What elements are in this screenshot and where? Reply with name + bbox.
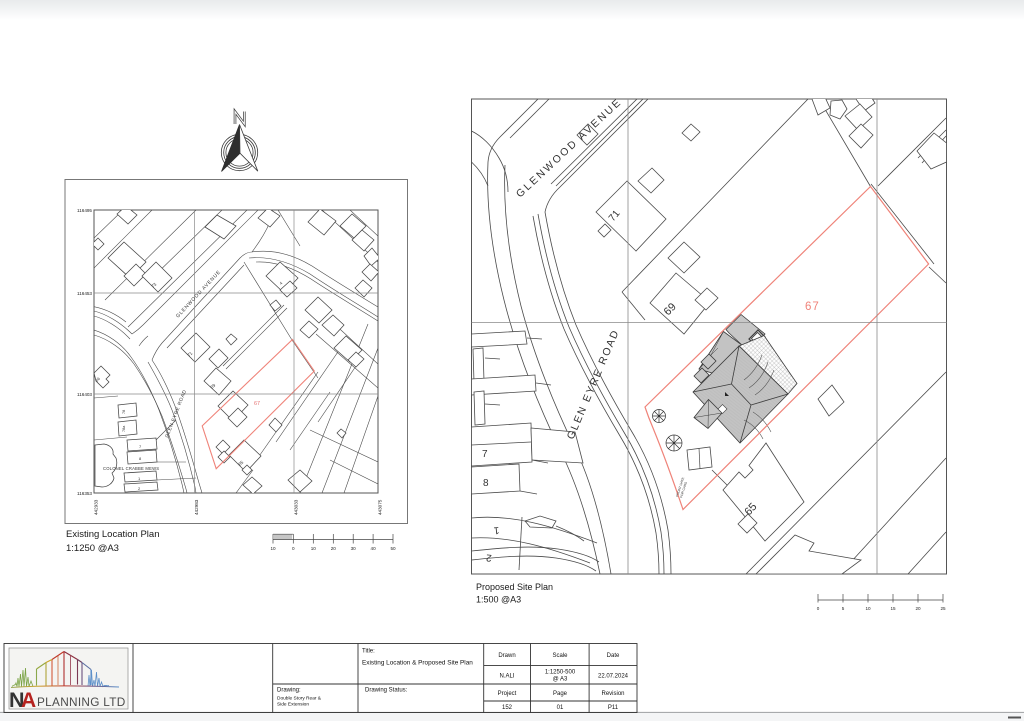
svg-text:5: 5	[842, 606, 845, 611]
svg-text:@ A3: @ A3	[553, 677, 568, 683]
svg-text:10: 10	[270, 546, 276, 551]
svg-text:P11: P11	[608, 705, 619, 711]
svg-text:116495: 116495	[77, 208, 92, 213]
svg-text:30: 30	[351, 546, 357, 551]
svg-text:0: 0	[817, 606, 820, 611]
svg-text:Date: Date	[607, 653, 620, 659]
svg-text:Drawn: Drawn	[498, 653, 515, 659]
svg-text:Project: Project	[498, 691, 517, 697]
svg-text:A: A	[21, 689, 36, 712]
svg-text:Proposed Site Plan: Proposed Site Plan	[476, 582, 553, 592]
svg-text:116353: 116353	[77, 491, 92, 496]
svg-text:0: 0	[292, 546, 295, 551]
svg-text:01: 01	[557, 705, 564, 711]
svg-text:67: 67	[805, 301, 820, 313]
svg-text:20: 20	[915, 606, 921, 611]
svg-text:Drawing Status:: Drawing Status:	[365, 688, 408, 694]
svg-text:COLONEL CRABBE MEWS: COLONEL CRABBE MEWS	[103, 466, 159, 471]
svg-text:10: 10	[311, 546, 317, 551]
svg-text:40: 40	[371, 546, 377, 551]
svg-text:Existing Location Plan: Existing Location Plan	[66, 529, 159, 540]
svg-text:1:500 @A3: 1:500 @A3	[476, 595, 521, 605]
svg-text:PLANNING LTD: PLANNING LTD	[37, 695, 126, 709]
svg-text:Revision: Revision	[601, 691, 624, 697]
svg-text:Drawing:: Drawing:	[277, 688, 301, 694]
svg-text:442933: 442933	[94, 499, 99, 515]
svg-text:25: 25	[940, 606, 946, 611]
svg-text:N.ALI: N.ALI	[499, 674, 514, 680]
svg-text:442983: 442983	[194, 499, 199, 515]
svg-text:20: 20	[331, 546, 337, 551]
svg-text:Double Story Rear &: Double Story Rear &	[277, 696, 322, 702]
svg-text:7: 7	[482, 449, 488, 460]
svg-text:116403: 116403	[77, 392, 92, 397]
svg-text:Title:: Title:	[362, 649, 375, 655]
svg-text:8: 8	[483, 478, 489, 489]
svg-text:443033: 443033	[294, 499, 299, 515]
svg-text:152: 152	[502, 705, 513, 711]
svg-text:116453: 116453	[77, 291, 92, 296]
svg-text:78: 78	[122, 410, 126, 414]
svg-text:Existing Location & Proposed S: Existing Location & Proposed Site Plan	[362, 660, 473, 667]
svg-text:Scale: Scale	[552, 653, 568, 659]
svg-text:78a: 78a	[122, 425, 126, 432]
svg-text:443075: 443075	[378, 499, 383, 515]
svg-text:1:1250-500: 1:1250-500	[545, 670, 576, 676]
svg-text:67: 67	[254, 401, 260, 407]
svg-text:15: 15	[890, 606, 896, 611]
svg-text:Page: Page	[553, 691, 568, 697]
svg-text:22.07.2024: 22.07.2024	[598, 674, 629, 680]
svg-text:1:1250 @A3: 1:1250 @A3	[66, 543, 119, 554]
svg-text:10: 10	[865, 606, 871, 611]
svg-text:50: 50	[390, 546, 396, 551]
svg-text:Side Extension: Side Extension	[277, 702, 309, 708]
